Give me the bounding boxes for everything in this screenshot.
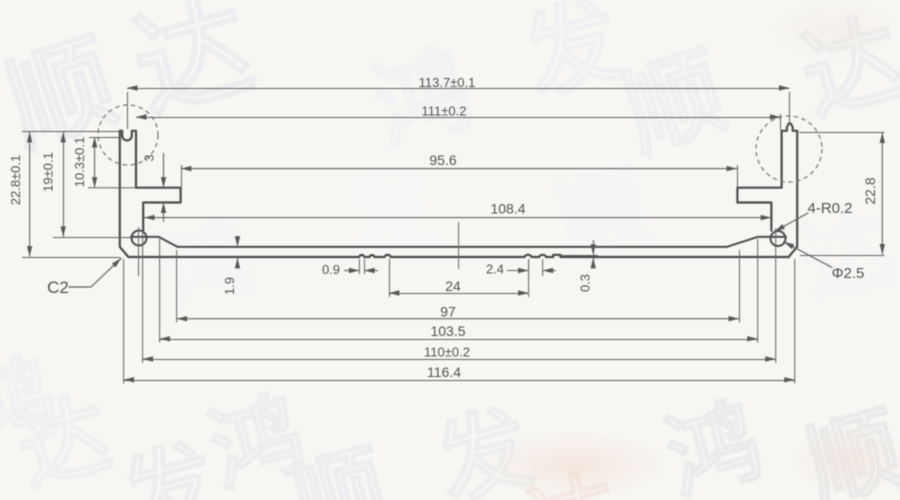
svg-text:103.5: 103.5 bbox=[430, 323, 465, 339]
svg-text:Φ2.5: Φ2.5 bbox=[832, 265, 865, 282]
svg-text:22.8±0.1: 22.8±0.1 bbox=[8, 155, 23, 206]
svg-text:97: 97 bbox=[440, 304, 456, 320]
svg-text:0.9: 0.9 bbox=[322, 262, 340, 277]
svg-text:113.7±0.1: 113.7±0.1 bbox=[419, 75, 476, 90]
svg-text:111±0.2: 111±0.2 bbox=[422, 104, 467, 119]
svg-text:4-R0.2: 4-R0.2 bbox=[807, 200, 852, 217]
svg-text:C2: C2 bbox=[47, 278, 69, 297]
svg-text:1.9: 1.9 bbox=[222, 277, 237, 295]
svg-text:10.3±0.1: 10.3±0.1 bbox=[72, 137, 87, 188]
svg-text:0.3: 0.3 bbox=[578, 274, 593, 292]
svg-text:22.8: 22.8 bbox=[862, 177, 878, 204]
svg-text:19±0.1: 19±0.1 bbox=[41, 152, 56, 192]
svg-text:110±0.2: 110±0.2 bbox=[424, 345, 470, 360]
svg-text:95.6: 95.6 bbox=[429, 152, 456, 168]
svg-text:24: 24 bbox=[445, 278, 461, 294]
svg-text:108.4: 108.4 bbox=[490, 201, 525, 217]
svg-text:2.4: 2.4 bbox=[486, 262, 504, 277]
svg-text:116.4: 116.4 bbox=[427, 364, 461, 380]
svg-text:3: 3 bbox=[142, 154, 157, 161]
